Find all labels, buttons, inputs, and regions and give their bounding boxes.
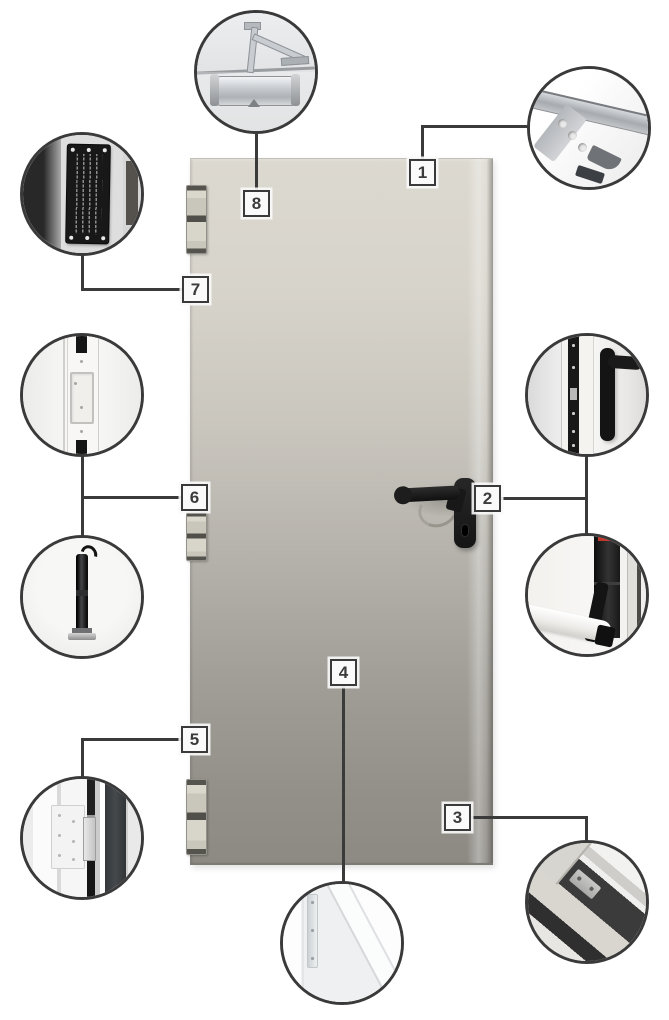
marker-3: 3 [444, 804, 471, 831]
faceplate-screw [572, 430, 575, 433]
hinge-gap-top [87, 779, 95, 815]
connector-1-horizontal [421, 125, 529, 128]
connector-4 [342, 686, 345, 883]
rating-plate [66, 145, 110, 244]
hinge-screw [80, 430, 83, 433]
callout-circle-hinge [20, 776, 144, 900]
hinge-screw [80, 360, 83, 363]
rod-base-plate [68, 633, 96, 640]
callout-circle-frame-corner [525, 840, 649, 964]
hinge-screw [311, 929, 314, 932]
anchor-hole [558, 119, 567, 128]
marker-7: 7 [182, 276, 209, 303]
frame-corner-profiles [525, 840, 649, 964]
door-hinge-bottom [186, 779, 207, 855]
anchor-hole [578, 143, 587, 152]
marker-8: 8 [243, 190, 270, 217]
striker-screw [589, 886, 594, 891]
connector-5-horizontal [82, 738, 183, 741]
marker-5-label: 5 [190, 730, 199, 750]
connector-2-vertical [585, 455, 588, 535]
callout-circle-frame-anchor [527, 66, 651, 190]
connector-3-horizontal [471, 816, 587, 819]
callout-circle-edge-hinge [20, 333, 144, 457]
closer-endcap-right [291, 74, 300, 106]
door-hinge-top [186, 185, 207, 254]
frame-gap-line [637, 560, 641, 632]
door-diagram: 1 2 3 4 5 6 7 8 [0, 0, 669, 1020]
marker-4: 4 [330, 659, 357, 686]
marker-2-label: 2 [483, 489, 492, 509]
hinge-notch-bottom [76, 440, 87, 454]
marker-1-label: 1 [418, 163, 427, 183]
keyhole [462, 525, 468, 536]
hinge-screw [311, 901, 314, 904]
anchor-hole [568, 131, 577, 140]
hinge-notch-top [76, 336, 87, 353]
plate-screw [103, 148, 107, 152]
connector-1-vertical [421, 125, 424, 161]
plate-screw [87, 148, 91, 152]
connector-7-horizontal [81, 288, 183, 291]
hinge-screw [72, 820, 75, 823]
faceplate-screw [572, 412, 575, 415]
closer-body [214, 76, 298, 106]
callout-circle-lock-edge [525, 333, 649, 457]
door-gap-shadow [20, 132, 67, 256]
edge-hinge-strip [307, 894, 318, 968]
callout-circle-door-corner [280, 881, 404, 1005]
hinge-knuckle [83, 817, 96, 861]
plate-screw [71, 148, 75, 152]
hinge-screw [311, 957, 314, 960]
marker-5: 5 [181, 726, 208, 753]
striker-screw [577, 876, 582, 881]
plate-screw [101, 236, 105, 240]
rating-plate-text-rows [75, 154, 102, 234]
frame-outer-strip [126, 779, 143, 897]
faceplate-screw [572, 444, 575, 447]
marker-1: 1 [409, 159, 436, 186]
faceplate-screw [572, 366, 575, 369]
callout-circle-panic-bar [525, 533, 649, 657]
connector-3-vertical [585, 816, 588, 843]
connector-7-vertical [81, 254, 84, 291]
door-edge-strip [627, 536, 637, 654]
marker-6-label: 6 [190, 488, 199, 508]
latch-bolt [570, 388, 577, 400]
plate-screw [69, 236, 73, 240]
marker-7-label: 7 [191, 280, 200, 300]
hinge-screw [72, 858, 75, 861]
door-edge-line [302, 884, 304, 1002]
edge-seam [63, 336, 65, 454]
hinge-screw [80, 406, 83, 409]
callout-circle-rating-plate [20, 132, 144, 256]
door-hinge-middle [186, 512, 207, 561]
edge-shadow-strip [126, 161, 138, 225]
connector-6-vertical [81, 455, 84, 537]
connector-2-horizontal [499, 497, 587, 500]
marker-4-label: 4 [339, 663, 348, 683]
hinge-screw [58, 854, 61, 857]
frame-strip [23, 779, 33, 897]
handle-grip [608, 355, 644, 370]
marker-3-label: 3 [453, 808, 462, 828]
striker-plate [569, 869, 602, 900]
hinge-screw [58, 834, 61, 837]
marker-8-label: 8 [252, 194, 261, 214]
hinge-screw [72, 840, 75, 843]
callout-circle-door-closer [194, 10, 318, 134]
connector-8 [255, 133, 258, 191]
hinge-screw [74, 382, 77, 385]
closer-endcap-left [210, 74, 219, 106]
marker-6: 6 [181, 484, 208, 511]
connector-6-horizontal [82, 496, 182, 499]
rod-band [76, 590, 88, 596]
frame-seal-band [105, 779, 126, 897]
panic-red-indicator [598, 536, 611, 541]
hinge-screw [58, 814, 61, 817]
marker-2: 2 [474, 485, 501, 512]
callout-circle-closer-rod [20, 535, 144, 659]
hinge-plate [51, 805, 85, 869]
hinge-recess [70, 372, 94, 424]
connector-5-vertical [81, 738, 84, 778]
faceplate-screw [572, 344, 575, 347]
plate-screw [85, 236, 89, 240]
